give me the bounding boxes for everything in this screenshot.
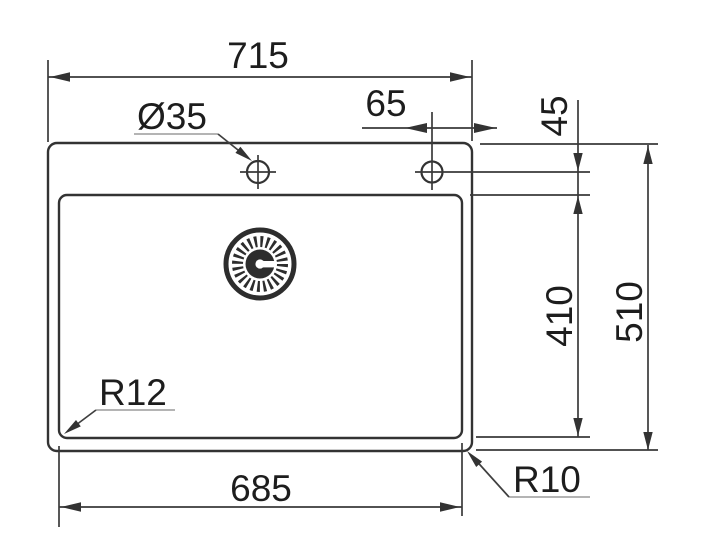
arrowhead-left — [405, 123, 427, 133]
callout-hole-diameter: Ø35 — [134, 96, 252, 161]
callout-bowl-corner-radius: R12 — [64, 372, 175, 434]
arrowhead-right — [450, 72, 470, 81]
dim-bowl-width-label: 685 — [230, 468, 292, 509]
arrowhead-right — [440, 502, 460, 511]
callout-outer-corner-radius: R10 — [467, 451, 590, 500]
dim-overall-width-label: 715 — [227, 35, 289, 76]
dim-hole-offset: 65 — [362, 83, 497, 133]
technical-drawing: 715 Ø35 65 45 410 510 — [0, 0, 717, 544]
arrowhead-hole-inset-bottom — [573, 153, 582, 171]
arrowhead-bowl-depth-bottom — [573, 418, 582, 436]
dim-overall-depth: 510 — [609, 145, 653, 450]
bowl-corner-radius-arrowhead — [64, 420, 81, 434]
arrowhead-top — [643, 146, 652, 164]
dim-overall-width: 715 — [48, 35, 472, 142]
bowl-corner-radius-label: R12 — [99, 372, 167, 413]
drain-knob-slot — [260, 261, 275, 267]
arrowhead-left — [50, 72, 70, 81]
hole-diameter-label: Ø35 — [137, 96, 207, 137]
dim-hole-inset-label: 45 — [534, 95, 575, 136]
outer-corner-radius-label: R10 — [513, 459, 581, 500]
dim-hole-offset-label: 65 — [365, 83, 406, 124]
arrowhead-bottom — [643, 432, 652, 450]
dim-bowl-depth-label: 410 — [539, 285, 580, 347]
dim-hole-inset-and-bowl-depth: 45 410 — [534, 95, 583, 437]
drain — [226, 230, 294, 298]
arrowhead-left — [61, 502, 81, 511]
dim-overall-depth-label: 510 — [609, 281, 650, 343]
dim-bowl-width: 685 — [59, 443, 462, 527]
arrowhead-bowl-depth-top — [573, 196, 582, 214]
arrowhead-right — [474, 123, 496, 133]
faucet-hole-center — [240, 155, 276, 189]
